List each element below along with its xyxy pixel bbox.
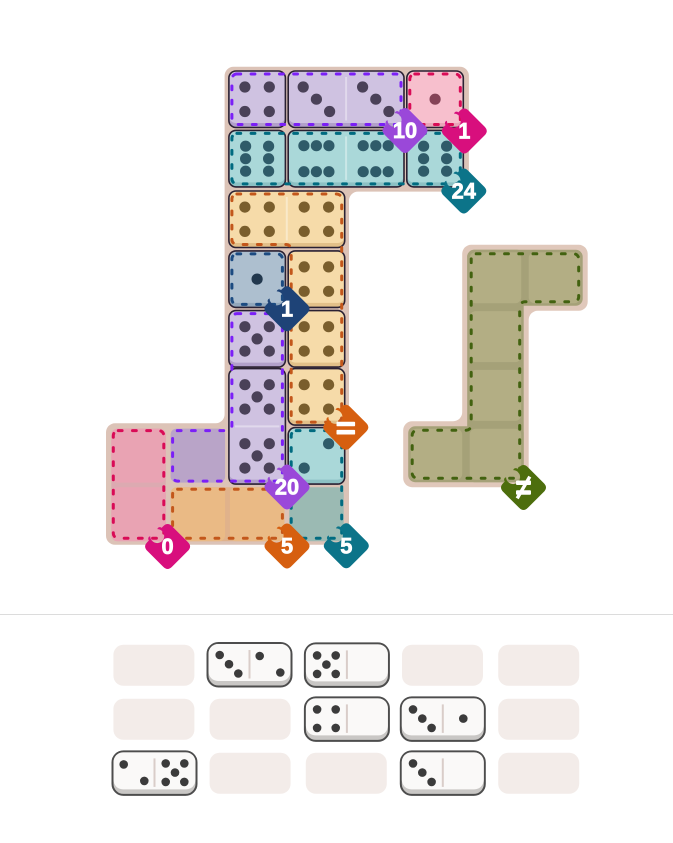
svg-text:5: 5 <box>281 534 293 559</box>
svg-text:1: 1 <box>458 119 470 144</box>
svg-text:5: 5 <box>340 533 352 558</box>
svg-text:20: 20 <box>275 475 299 500</box>
svg-text:1: 1 <box>281 296 293 321</box>
svg-text:10: 10 <box>393 118 417 143</box>
svg-text:0: 0 <box>162 534 174 559</box>
svg-text:24: 24 <box>452 179 476 204</box>
